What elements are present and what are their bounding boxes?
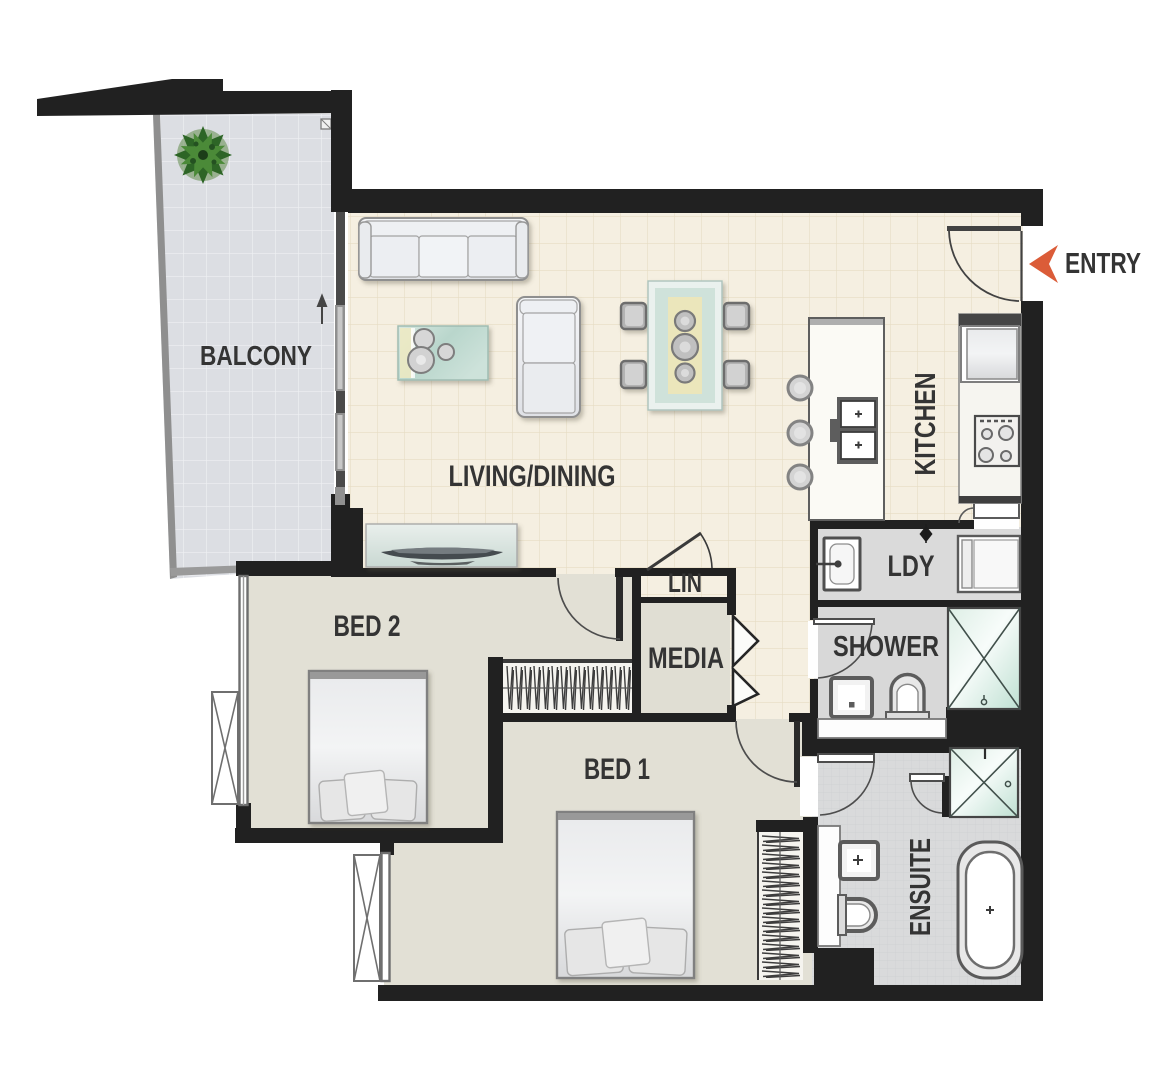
svg-text:LIVING/DINING: LIVING/DINING [449,460,616,493]
svg-text:BED 1: BED 1 [584,753,650,786]
svg-text:MEDIA: MEDIA [648,642,724,675]
svg-text:ENTRY: ENTRY [1065,248,1141,280]
svg-text:LDY: LDY [888,550,935,583]
svg-text:SHOWER: SHOWER [833,631,939,663]
svg-text:ENSUITE: ENSUITE [905,838,937,936]
svg-text:LIN: LIN [668,568,702,598]
svg-text:KITCHEN: KITCHEN [910,373,942,476]
svg-text:BALCONY: BALCONY [200,340,312,371]
svg-text:BED 2: BED 2 [334,610,401,643]
